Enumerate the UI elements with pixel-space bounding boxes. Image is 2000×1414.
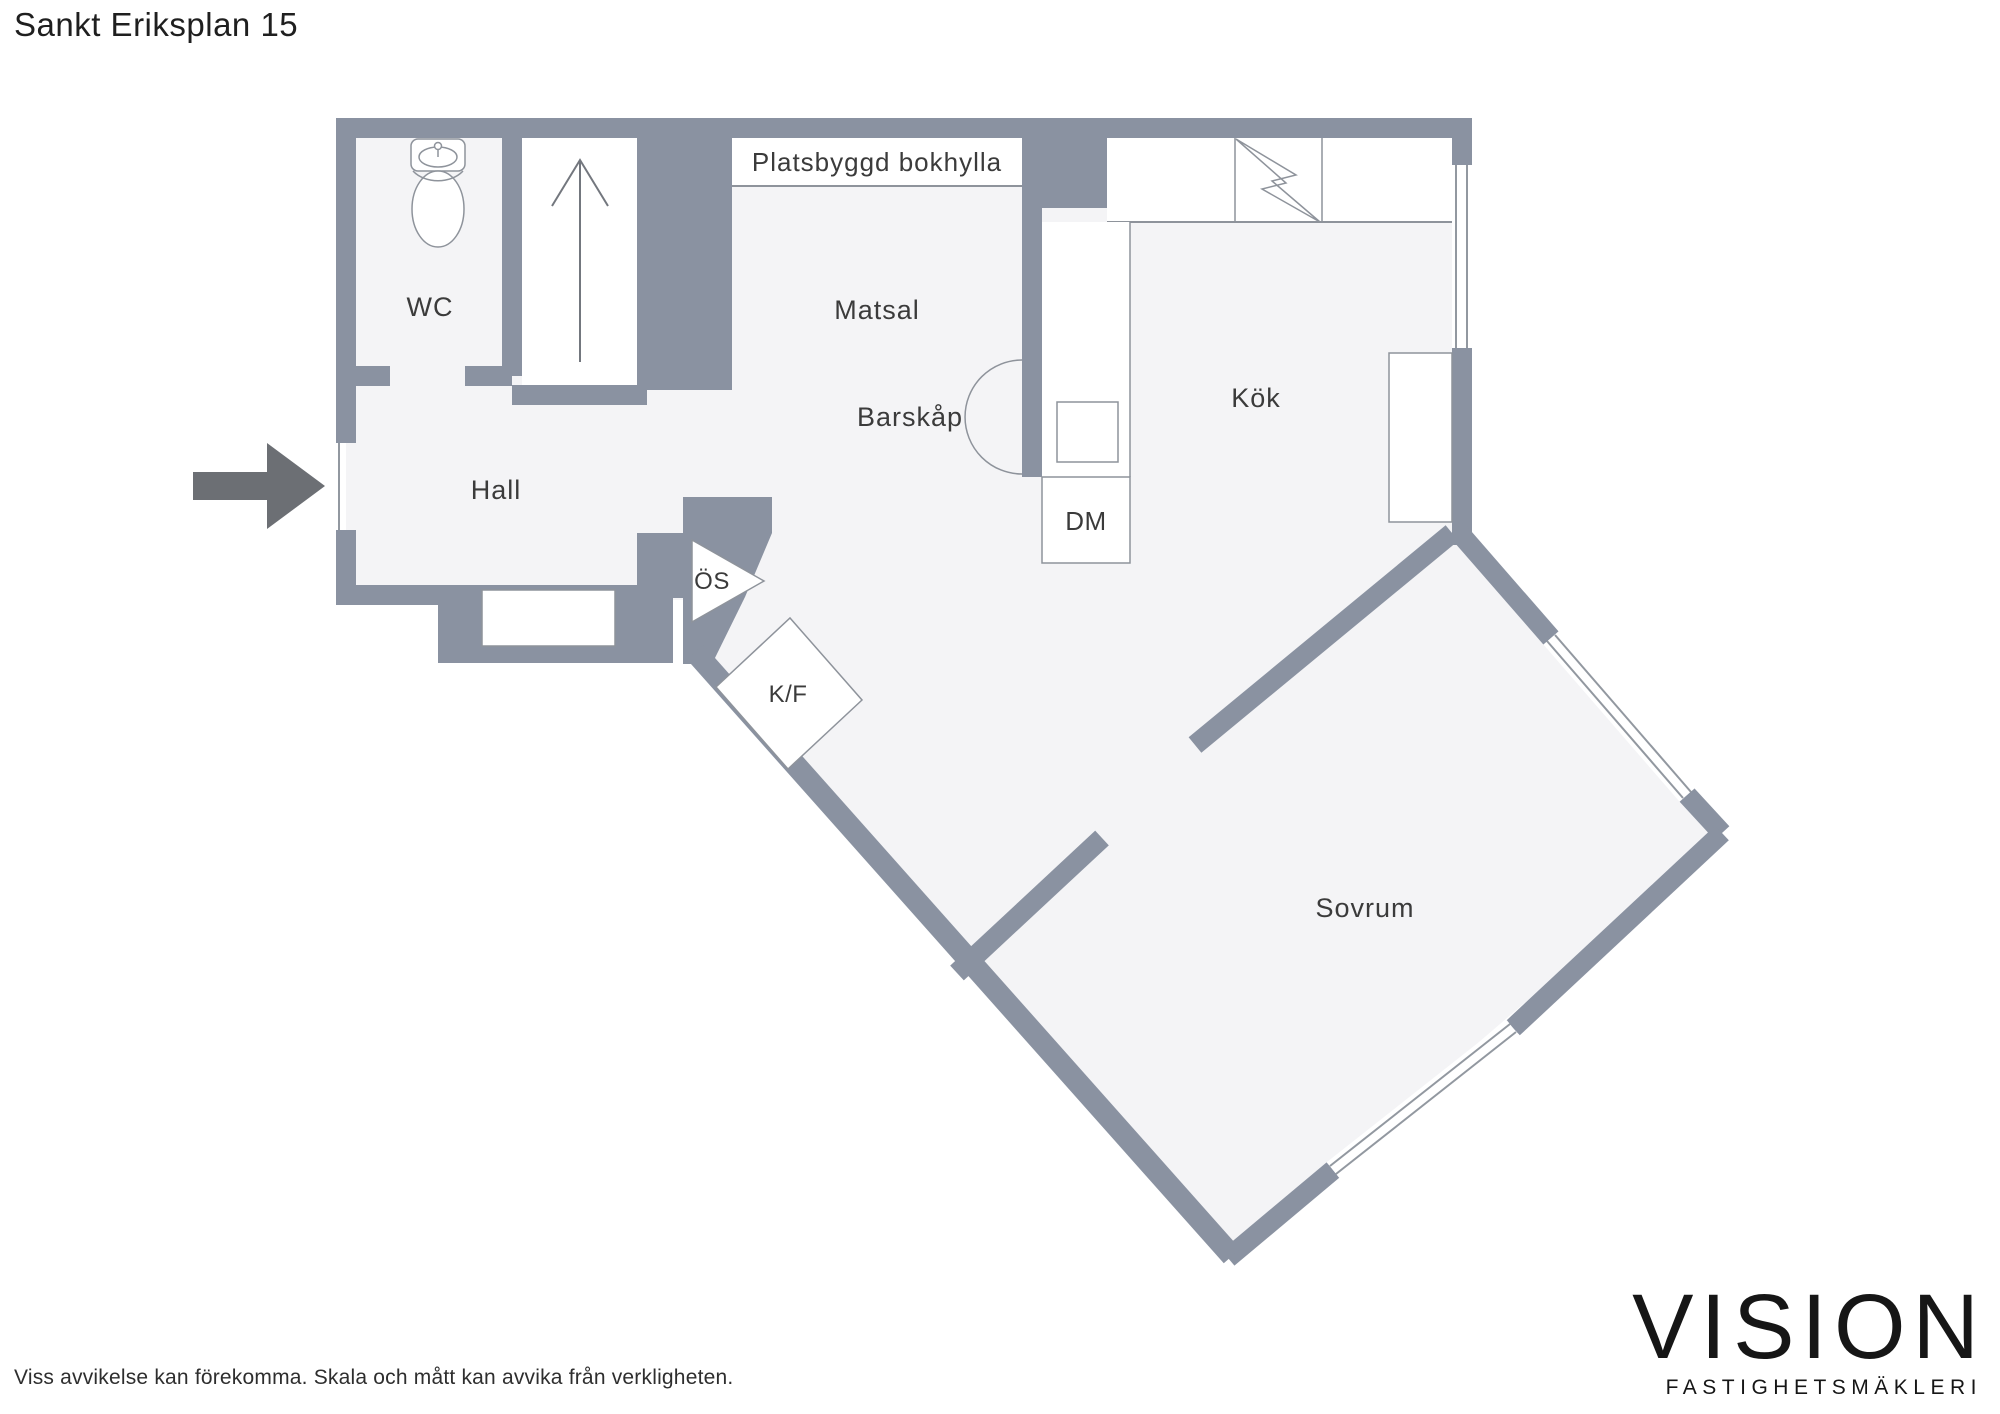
brand-logo: VISION FASTIGHETSMÄKLERI <box>1632 1288 1986 1400</box>
brand-logo-tagline: FASTIGHETSMÄKLERI <box>1632 1376 1982 1400</box>
wall-kok-corner-mass <box>1022 138 1107 208</box>
label-os: ÖS <box>694 568 730 595</box>
label-hall: Hall <box>471 475 522 505</box>
label-barskap: Barskåp <box>857 402 963 432</box>
label-bokhylla: Platsbyggd bokhylla <box>752 147 1002 177</box>
floor-plan: WC Hall Matsal Barskåp Platsbyggd bokhyl… <box>0 0 2000 1414</box>
label-matsal: Matsal <box>834 295 920 325</box>
label-kok: Kök <box>1231 383 1281 413</box>
stairwell <box>522 138 637 385</box>
kitchen-left-counter <box>1042 222 1130 477</box>
label-sovrum: Sovrum <box>1315 893 1414 923</box>
label-dm: DM <box>1065 506 1106 536</box>
brand-logo-name: VISION <box>1632 1288 1986 1366</box>
wc-fixtures <box>411 139 465 247</box>
label-wc: WC <box>407 292 454 322</box>
kitchen-top-counter <box>1107 138 1452 222</box>
kitchen-right-counter <box>1389 353 1452 522</box>
toilet-icon <box>411 139 465 247</box>
label-kf: K/F <box>769 681 808 708</box>
window-icon-kitchen-east <box>1452 165 1472 348</box>
sink-icon <box>1057 402 1118 462</box>
floorplan-page: Sankt Eriksplan 15 <box>0 0 2000 1414</box>
hall-wardrobe-niche <box>482 590 615 646</box>
wall-stair-matsal-pillar <box>637 118 732 390</box>
disclaimer-text: Viss avvikelse kan förekomma. Skala och … <box>14 1366 733 1390</box>
entry-arrow-icon <box>193 443 325 529</box>
